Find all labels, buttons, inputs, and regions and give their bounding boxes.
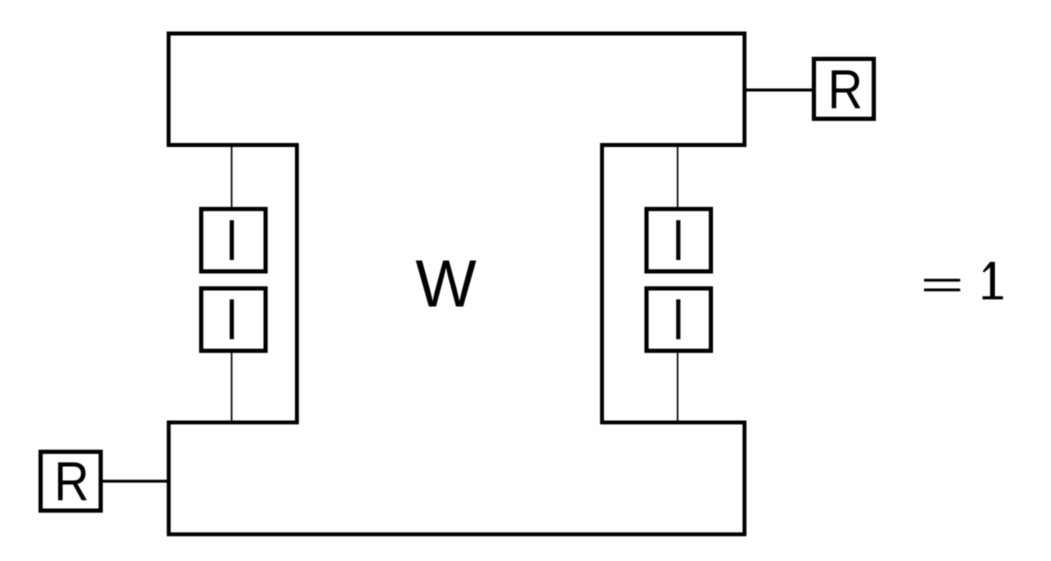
svg-text:W: W <box>416 246 478 321</box>
svg-text:R: R <box>54 450 89 512</box>
svg-text:R: R <box>828 58 863 120</box>
